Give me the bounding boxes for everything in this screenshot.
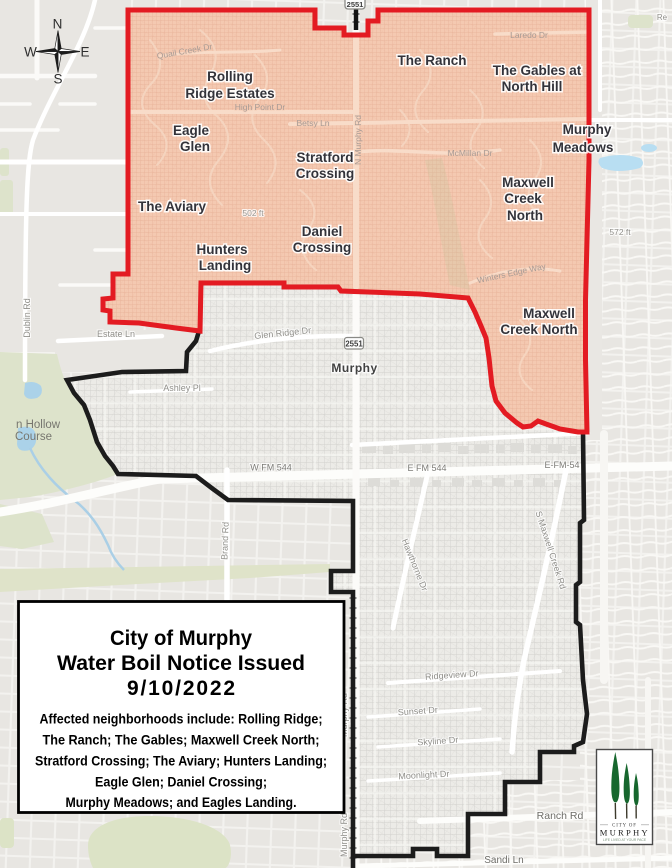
svg-text:Stratford Crossing; The Aviary: Stratford Crossing; The Aviary; Hunters … (35, 753, 327, 769)
svg-text:Ranch Rd: Ranch Rd (537, 810, 584, 822)
svg-text:Re: Re (657, 13, 668, 22)
svg-text:Dublin Rd: Dublin Rd (22, 298, 32, 338)
svg-text:City of Murphy: City of Murphy (110, 627, 252, 650)
svg-text:2551: 2551 (347, 0, 364, 9)
svg-text:North Hill: North Hill (502, 79, 563, 94)
svg-text:The Gables at: The Gables at (493, 63, 582, 78)
svg-text:n Hollow: n Hollow (16, 419, 61, 431)
svg-text:Laredo Dr: Laredo Dr (510, 30, 548, 40)
svg-text:E: E (80, 45, 89, 60)
svg-text:The Ranch; The Gables; Maxwell: The Ranch; The Gables; Maxwell Creek Nor… (43, 732, 320, 748)
svg-text:Hunters: Hunters (196, 242, 247, 257)
svg-text:Eagle Glen; Daniel Crossing;: Eagle Glen; Daniel Crossing; (95, 774, 267, 790)
svg-text:Murphy: Murphy (563, 122, 612, 137)
svg-text:Betsy Ln: Betsy Ln (296, 118, 329, 128)
svg-text:Ridge Estates: Ridge Estates (185, 86, 274, 101)
svg-text:N: N (53, 17, 63, 32)
svg-text:Creek North: Creek North (500, 322, 577, 337)
svg-text:Murphy Meadows; and Eagles Lan: Murphy Meadows; and Eagles Landing. (66, 794, 297, 810)
svg-text:Meadows: Meadows (553, 140, 614, 155)
svg-text:Water Boil Notice Issued: Water Boil Notice Issued (57, 652, 305, 675)
svg-text:N Murphy Rd: N Murphy Rd (353, 115, 363, 165)
svg-text:Eagle: Eagle (173, 123, 210, 138)
svg-text:572 ft: 572 ft (609, 227, 631, 237)
svg-text:MURPHY: MURPHY (600, 828, 650, 838)
svg-text:The Aviary: The Aviary (138, 199, 207, 214)
svg-text:Murphy Rd: Murphy Rd (339, 813, 349, 857)
svg-text:Rolling: Rolling (207, 69, 253, 84)
svg-text:High Point Dr: High Point Dr (235, 102, 286, 112)
svg-text:Maxwell: Maxwell (523, 306, 575, 321)
svg-text:Glen: Glen (180, 139, 210, 154)
svg-text:Crossing: Crossing (296, 166, 355, 181)
svg-text:Crossing: Crossing (293, 240, 352, 255)
svg-text:W: W (24, 45, 37, 60)
svg-text:Ashley Pl: Ashley Pl (163, 383, 201, 393)
svg-text:Estate Ln: Estate Ln (97, 329, 135, 339)
svg-text:LIFE LIVED AT YOUR PACE: LIFE LIVED AT YOUR PACE (603, 838, 647, 842)
svg-text:Daniel: Daniel (302, 224, 343, 239)
svg-text:Affected neighborhoods include: Affected neighborhoods include: Rolling … (40, 711, 323, 727)
svg-text:The Ranch: The Ranch (397, 53, 466, 68)
svg-text:E FM 544: E FM 544 (407, 463, 446, 473)
svg-text:Maxwell: Maxwell (502, 175, 554, 190)
svg-text:Course: Course (15, 431, 52, 443)
svg-text:Brand Rd: Brand Rd (219, 522, 230, 560)
svg-text:Creek: Creek (504, 191, 542, 206)
svg-text:2551: 2551 (345, 340, 363, 349)
svg-text:W FM 544: W FM 544 (250, 463, 292, 473)
svg-text:Murphy: Murphy (331, 361, 377, 375)
svg-text:Sandi Ln: Sandi Ln (484, 855, 523, 866)
svg-text:S: S (53, 72, 62, 87)
svg-text:Landing: Landing (199, 258, 252, 273)
svg-text:McMillan Dr: McMillan Dr (448, 148, 493, 158)
svg-text:North: North (507, 208, 543, 223)
svg-text:Stratford: Stratford (297, 150, 354, 165)
svg-text:502 ft: 502 ft (242, 208, 264, 218)
svg-text:E-FM-54: E-FM-54 (544, 460, 579, 470)
